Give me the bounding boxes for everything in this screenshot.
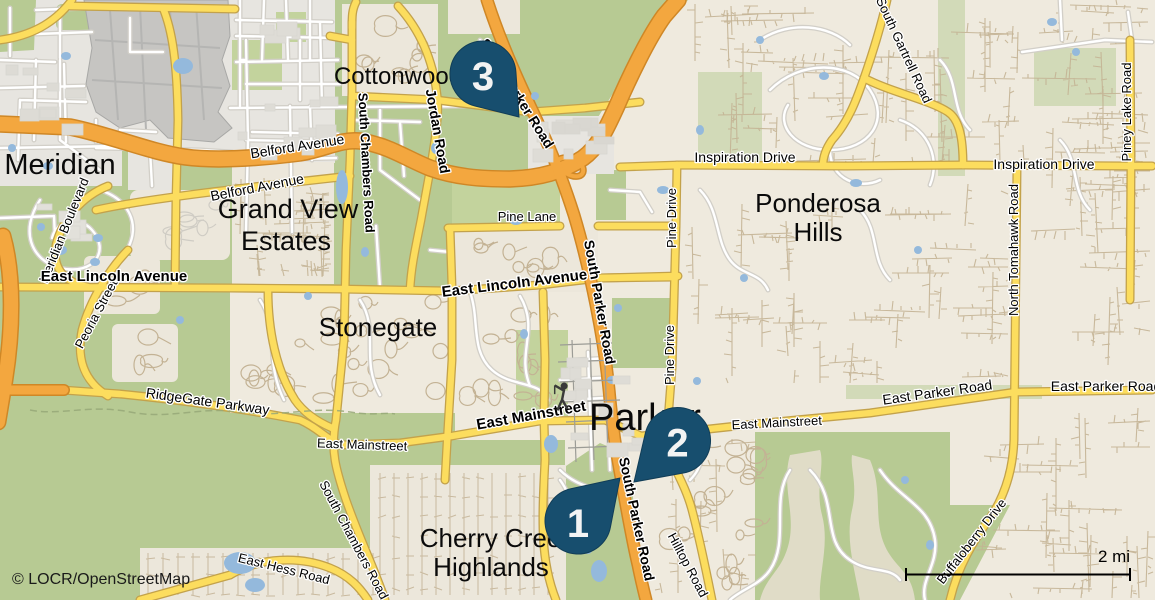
svg-text:Hills: Hills	[793, 217, 842, 247]
svg-text:Cottonwood: Cottonwood	[334, 63, 462, 90]
svg-text:Ponderosa: Ponderosa	[755, 188, 881, 218]
svg-text:Pine Drive: Pine Drive	[664, 188, 679, 248]
svg-text:East Mainstreet: East Mainstreet	[317, 435, 408, 453]
svg-text:Highlands: Highlands	[433, 552, 549, 582]
svg-text:Inspiration Drive: Inspiration Drive	[694, 149, 795, 165]
svg-text:Pine Lane: Pine Lane	[498, 209, 557, 224]
svg-text:Inspiration Drive: Inspiration Drive	[993, 156, 1094, 172]
svg-text:2 mi: 2 mi	[1098, 547, 1130, 566]
svg-text:Piney Lake Road: Piney Lake Road	[1119, 62, 1134, 161]
svg-text:1: 1	[567, 502, 589, 546]
svg-text:Estates: Estates	[241, 226, 331, 256]
svg-text:East Parker Road: East Parker Road	[1051, 378, 1155, 394]
svg-text:© LOCR/OpenStreetMap: © LOCR/OpenStreetMap	[12, 571, 190, 588]
svg-text:Stonegate: Stonegate	[319, 312, 438, 342]
svg-text:East Lincoln Avenue: East Lincoln Avenue	[41, 268, 187, 285]
svg-text:Meridian: Meridian	[4, 149, 115, 181]
svg-text:3: 3	[472, 55, 494, 99]
svg-text:North Tomahawk Road: North Tomahawk Road	[1006, 184, 1021, 316]
svg-text:Grand View: Grand View	[218, 194, 359, 224]
svg-text:Pine Drive: Pine Drive	[662, 325, 677, 385]
svg-text:2: 2	[666, 422, 688, 466]
